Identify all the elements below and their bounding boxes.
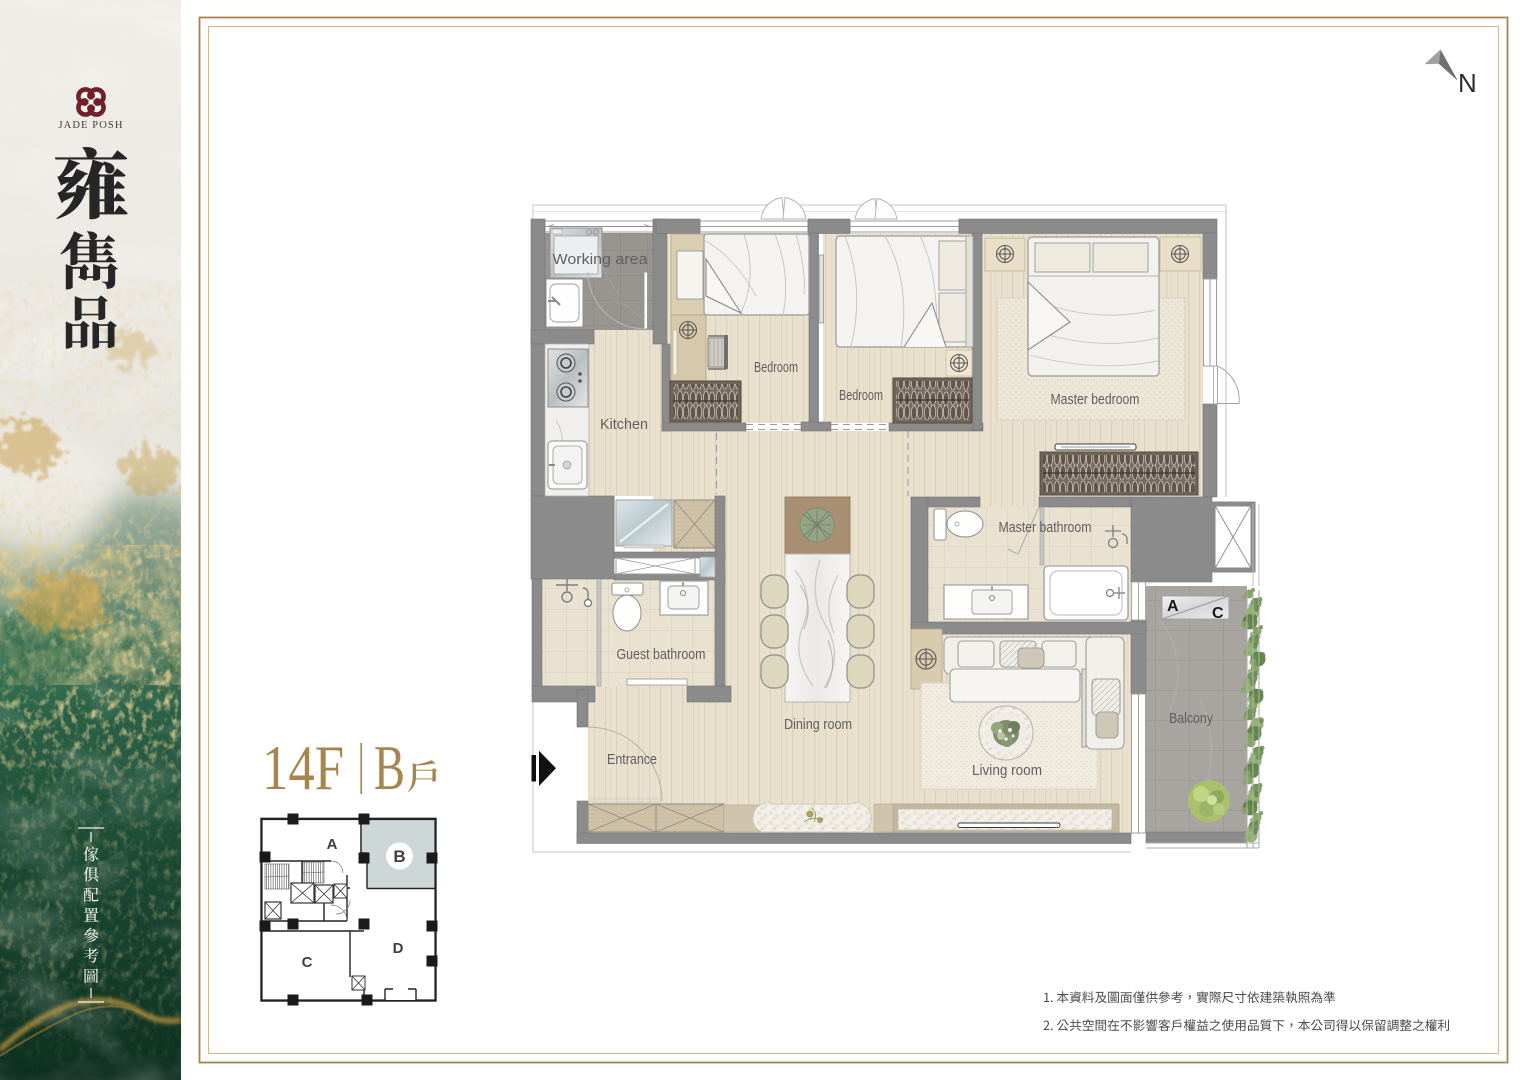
svg-text:Guest bathroom: Guest bathroom bbox=[617, 646, 706, 663]
svg-text:B: B bbox=[374, 733, 405, 803]
svg-text:B: B bbox=[393, 847, 405, 866]
svg-text:N: N bbox=[1458, 68, 1477, 98]
svg-text:D: D bbox=[393, 940, 404, 957]
svg-text:Bedroom: Bedroom bbox=[754, 359, 798, 376]
svg-text:A: A bbox=[327, 836, 338, 853]
svg-text:Living room: Living room bbox=[972, 762, 1042, 779]
svg-text:A: A bbox=[1167, 598, 1179, 615]
svg-text:Bedroom: Bedroom bbox=[839, 387, 883, 404]
svg-text:Balcony: Balcony bbox=[1169, 710, 1213, 727]
svg-text:Master bathroom: Master bathroom bbox=[999, 519, 1092, 536]
svg-text:Entrance: Entrance bbox=[607, 751, 657, 768]
svg-text:Kitchen: Kitchen bbox=[600, 416, 648, 433]
svg-text:JADE POSH: JADE POSH bbox=[58, 120, 123, 131]
svg-text:Working area: Working area bbox=[553, 251, 649, 268]
svg-text:C: C bbox=[1212, 605, 1224, 622]
svg-text:14F: 14F bbox=[262, 733, 344, 803]
svg-text:Dining room: Dining room bbox=[784, 716, 852, 733]
svg-text:C: C bbox=[302, 954, 313, 971]
svg-text:Master bedroom: Master bedroom bbox=[1051, 391, 1140, 408]
